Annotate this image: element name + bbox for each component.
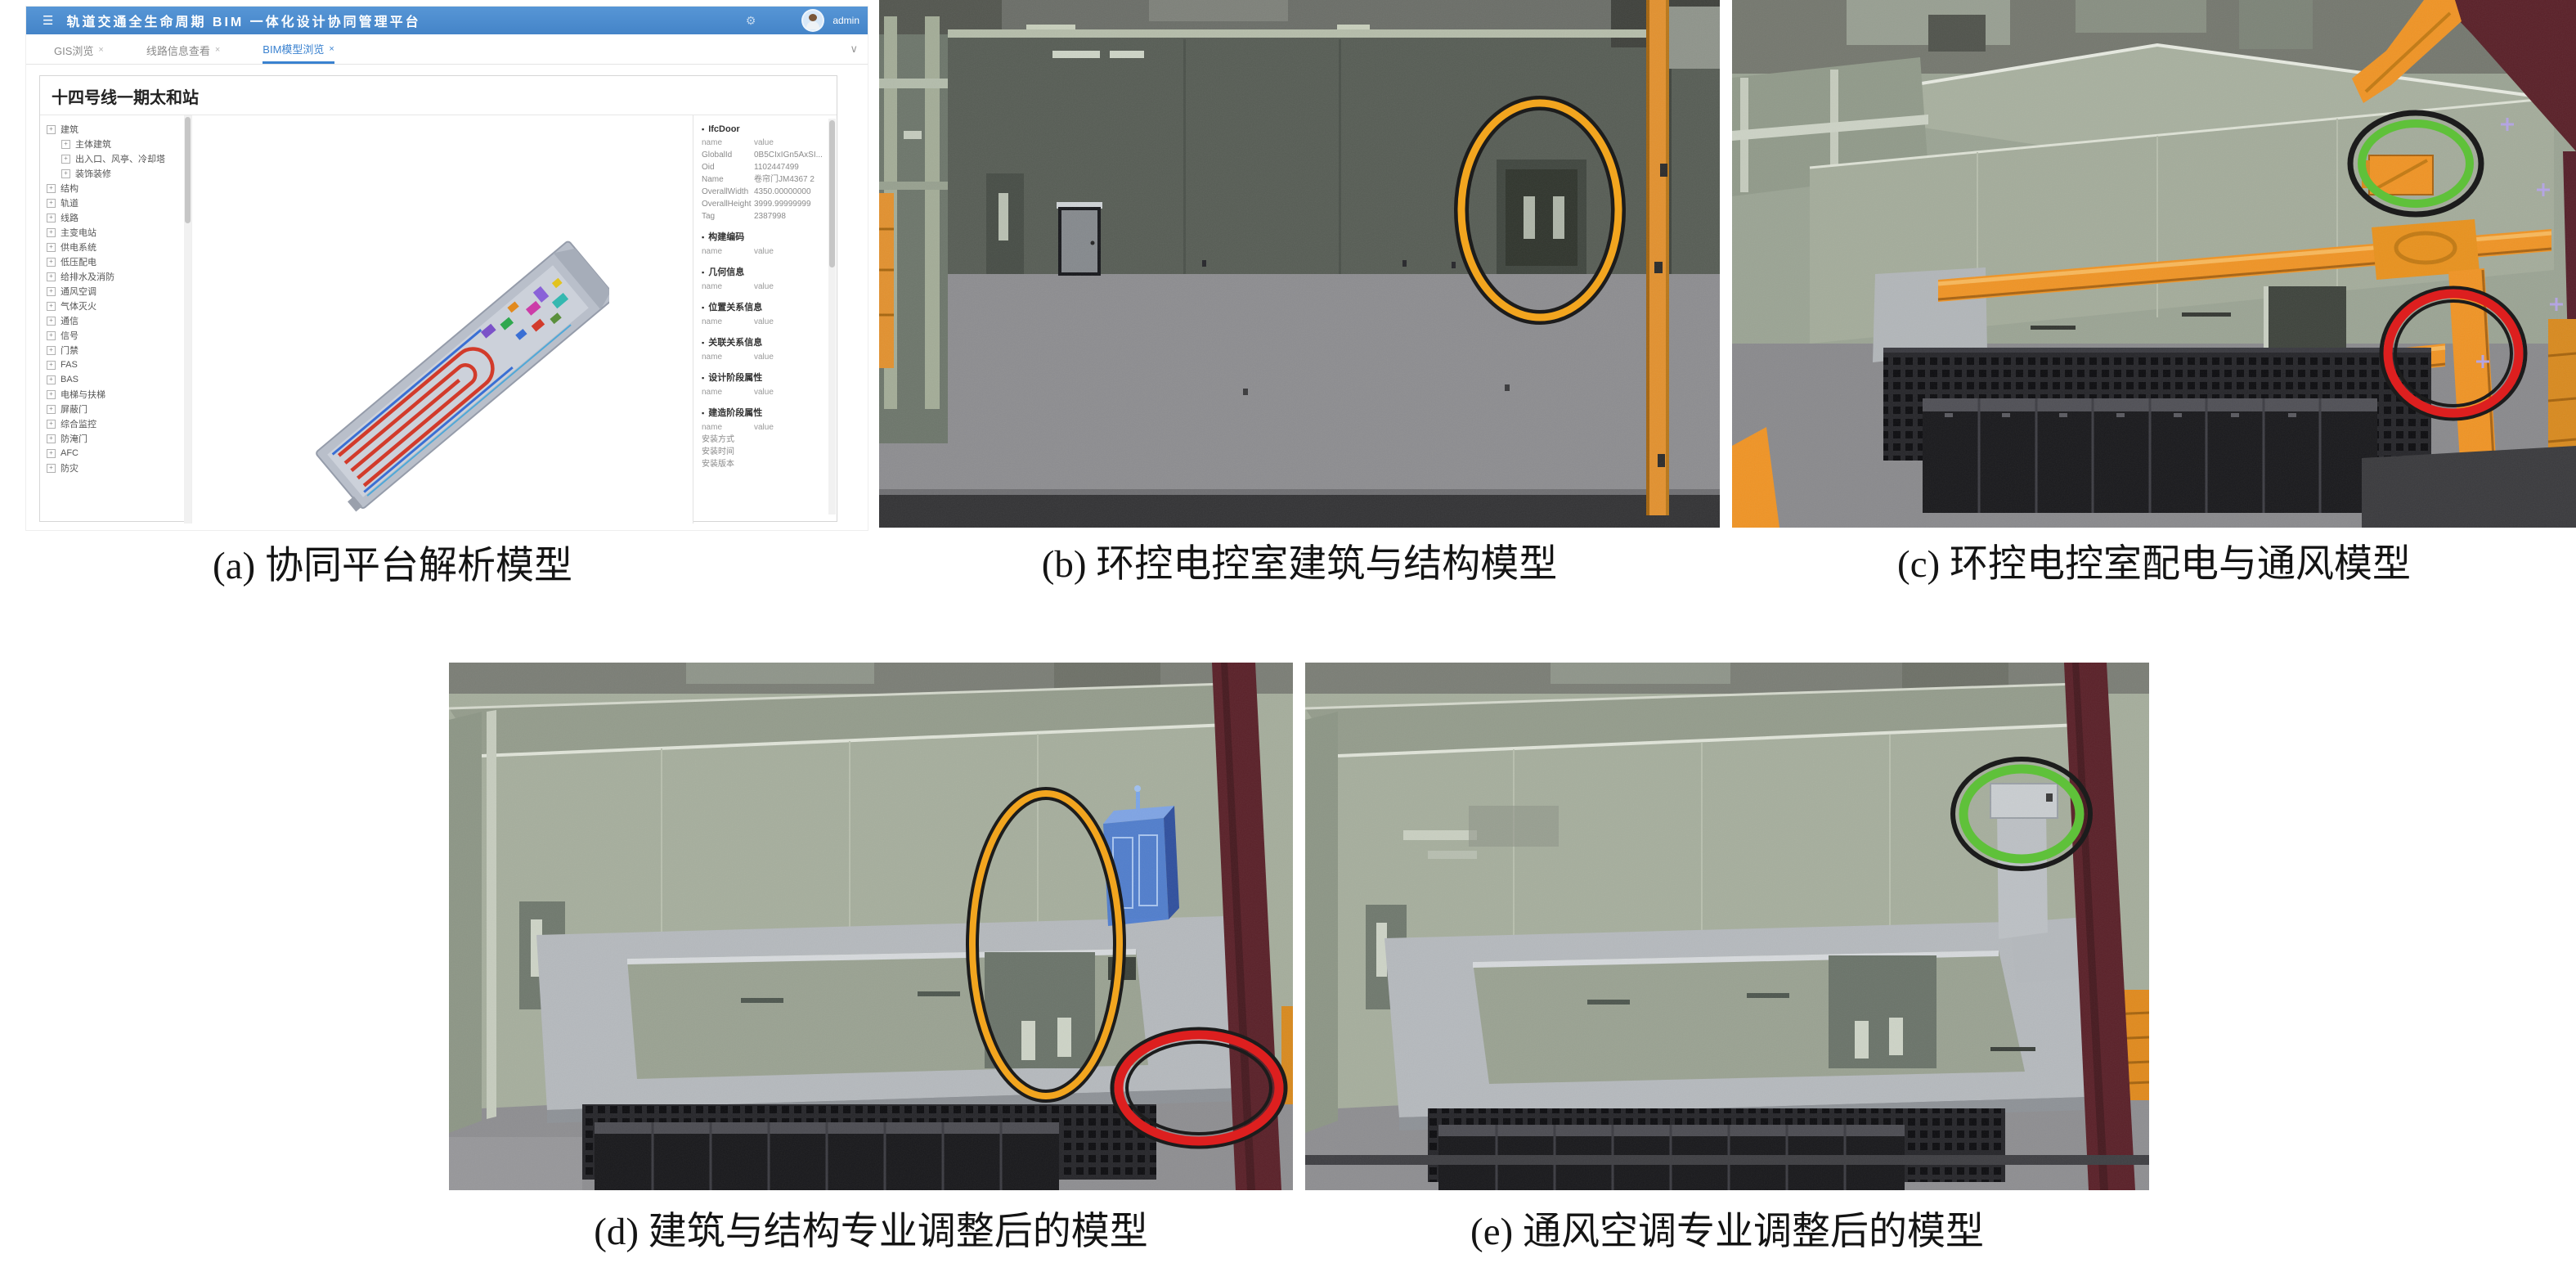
concrete-texture [1305, 663, 2149, 1190]
subfigure-b-structure-model [879, 0, 1720, 528]
tree-expander-icon[interactable]: + [47, 464, 56, 473]
property-section-title[interactable]: ▪几何信息 [702, 265, 827, 278]
tree-item[interactable]: +防淹门 [47, 431, 184, 446]
property-value: value [754, 386, 827, 398]
tree-item[interactable]: +供电系统 [47, 240, 184, 254]
property-row: Oid1102447499 [702, 161, 827, 173]
tree-item-label: 轨道 [61, 196, 79, 209]
property-panel: ▪IfcDoornamevalueGlobalId0B5CIxIGn5AxSI.… [693, 115, 837, 524]
tree-item-label: 供电系统 [61, 240, 96, 254]
hamburger-menu-icon[interactable]: ☰ [43, 13, 53, 28]
tree-item[interactable]: +BAS [47, 372, 184, 387]
property-value: 2387998 [754, 210, 827, 222]
tree-item[interactable]: +轨道 [47, 196, 184, 210]
tree-item[interactable]: +低压配电 [47, 254, 184, 269]
property-header-row: namevalue [702, 245, 827, 258]
tab-close-icon[interactable]: × [98, 45, 103, 55]
tree-item-label: 信号 [61, 329, 79, 342]
property-value: value [754, 351, 827, 363]
property-row: Name卷帘门JM4367 2 [702, 173, 827, 186]
property-row: OverallHeight3999.99999999 [702, 198, 827, 210]
tree-item[interactable]: +装饰装修 [61, 166, 184, 181]
property-key: name [702, 386, 754, 398]
tree-expander-icon[interactable]: + [47, 317, 56, 326]
username-label: admin [832, 15, 859, 26]
tree-item-label: 建筑 [61, 123, 79, 136]
tab-label: GIS浏览 [54, 43, 93, 58]
property-value: 卷帘门JM4367 2 [754, 173, 827, 186]
property-value: value [754, 245, 827, 258]
property-key: Oid [702, 161, 754, 173]
section-marker-icon: ▪ [702, 409, 704, 417]
property-header-row: namevalue [702, 386, 827, 398]
property-value: 3999.99999999 [754, 198, 827, 210]
subfigure-e-adjusted-hvac [1305, 663, 2149, 1190]
tree-item-label: 装饰装修 [75, 167, 111, 180]
tree-item[interactable]: +电梯与扶梯 [47, 387, 184, 402]
property-header-row: namevalue [702, 316, 827, 328]
property-value: value [754, 421, 827, 434]
tree-expander-icon[interactable]: + [47, 287, 56, 296]
property-key: GlobalId [702, 149, 754, 161]
subfigure-d-adjusted-structure [449, 663, 1293, 1190]
section-marker-icon: ▪ [702, 268, 704, 276]
tree-item[interactable]: +AFC [47, 446, 184, 461]
tree-item[interactable]: +FAS [47, 357, 184, 372]
tree-expander-icon[interactable]: + [47, 125, 56, 134]
tab-line-info[interactable]: 线路信息查看 × [146, 34, 220, 64]
tree-expander-icon[interactable]: + [47, 420, 56, 429]
model-viewport[interactable] [191, 115, 693, 524]
concrete-texture [1732, 0, 2576, 528]
tree-item-label: 主变电站 [61, 226, 96, 239]
property-key: name [702, 281, 754, 293]
tree-expander-icon[interactable]: + [47, 199, 56, 208]
property-section: ▪几何信息namevalue [702, 265, 827, 293]
tree-item-label: 结构 [61, 182, 79, 195]
tree-item-label: 综合监控 [61, 417, 96, 430]
property-row: GlobalId0B5CIxIGn5AxSI... [702, 149, 827, 161]
caption-c: (c) 环控电控室配电与通风模型 [1897, 532, 2411, 588]
section-marker-icon: ▪ [702, 303, 704, 312]
property-key: name [702, 351, 754, 363]
tree-expander-icon[interactable]: + [47, 346, 56, 355]
property-row: 安装方式 [702, 434, 827, 446]
property-section: ▪建造阶段属性namevalue安装方式安装时间安装版本 [702, 406, 827, 470]
property-row: OverallWidth4350.00000000 [702, 186, 827, 198]
property-key: name [702, 245, 754, 258]
property-value: value [754, 316, 827, 328]
tree-expander-icon[interactable]: + [47, 434, 56, 443]
caption-e: (e) 通风空调专业调整后的模型 [1470, 1199, 1984, 1256]
property-key: Name [702, 173, 754, 186]
property-key: Tag [702, 210, 754, 222]
tree-item[interactable]: +通风空调 [47, 284, 184, 299]
property-value: 4350.00000000 [754, 186, 827, 198]
tree-expander-icon[interactable]: + [47, 228, 56, 237]
property-header-row: namevalue [702, 137, 827, 149]
tree-expander-icon[interactable]: + [47, 331, 56, 340]
tab-close-icon[interactable]: × [215, 45, 220, 55]
tree-item-label: BAS [61, 375, 79, 384]
section-marker-icon: ▪ [702, 374, 704, 382]
station-3d-model [315, 213, 609, 524]
property-key: 安装时间 [702, 446, 754, 458]
property-header-row: namevalue [702, 421, 827, 434]
tree-item[interactable]: +气体灭火 [47, 299, 184, 313]
tree-item[interactable]: +屏蔽门 [47, 402, 184, 416]
property-key: 安装版本 [702, 458, 754, 470]
model-browser-panel: 十四号线一期太和站 +建筑+主体建筑+出入口、风亭、冷却塔+装饰装修+结构+轨道… [39, 75, 837, 522]
property-row: Tag2387998 [702, 210, 827, 222]
tree-expander-icon[interactable]: + [47, 243, 56, 252]
property-section-title[interactable]: ▪IfcDoor [702, 124, 827, 134]
tree-expander-icon[interactable]: + [61, 140, 70, 149]
property-section: ▪位置关系信息namevalue [702, 300, 827, 328]
property-key: OverallWidth [702, 186, 754, 198]
settings-gear-icon[interactable]: ⚙ [746, 14, 756, 28]
user-avatar[interactable] [801, 9, 824, 32]
concrete-texture [879, 0, 1720, 528]
tree-expander-icon[interactable]: + [47, 272, 56, 281]
props-scrollbar[interactable] [828, 119, 836, 515]
tree-item-label: 主体建筑 [75, 137, 111, 151]
section-marker-icon: ▪ [702, 339, 704, 347]
property-row: 安装时间 [702, 446, 827, 458]
property-value: value [754, 281, 827, 293]
property-header-row: namevalue [702, 351, 827, 363]
station-title: 十四号线一期太和站 [40, 76, 837, 115]
scrollbar-thumb[interactable] [829, 120, 835, 267]
tree-item-label: 电梯与扶梯 [61, 388, 105, 401]
scrollbar-thumb[interactable] [185, 117, 191, 223]
tree-item[interactable]: +给排水及消防 [47, 269, 184, 284]
tree-item-label: 屏蔽门 [61, 402, 88, 416]
tree-item-label: 防灾 [61, 461, 79, 474]
property-header-row: namevalue [702, 281, 827, 293]
tree-item-label: 通信 [61, 314, 79, 327]
tree-expander-icon[interactable]: + [47, 184, 56, 193]
tree-item-label: FAS [61, 360, 78, 370]
property-key: OverallHeight [702, 198, 754, 210]
tree-item[interactable]: +通信 [47, 313, 184, 328]
tree-item[interactable]: +线路 [47, 210, 184, 225]
tree-item-label: AFC [61, 448, 79, 458]
tree-item[interactable]: +门禁 [47, 343, 184, 357]
tree-item-label: 出入口、风亭、冷却塔 [75, 152, 165, 165]
section-marker-icon: ▪ [702, 233, 704, 241]
section-marker-icon: ▪ [702, 125, 704, 133]
property-section-title[interactable]: ▪构建编码 [702, 230, 827, 243]
caption-a: (a) 协同平台解析模型 [213, 533, 572, 590]
tree-expander-icon[interactable]: + [61, 155, 70, 164]
tree-item[interactable]: +主体建筑 [61, 137, 184, 151]
property-value [754, 446, 827, 458]
tree-item-label: 通风空调 [61, 285, 96, 298]
tree-item[interactable]: +主变电站 [47, 225, 184, 240]
tree-item-label: 门禁 [61, 344, 79, 357]
tree-item-label: 线路 [61, 211, 79, 224]
tree-item-label: 防淹门 [61, 432, 88, 445]
model-tree: +建筑+主体建筑+出入口、风亭、冷却塔+装饰装修+结构+轨道+线路+主变电站+供… [40, 115, 184, 524]
tree-expander-icon[interactable]: + [61, 169, 70, 178]
property-value: value [754, 137, 827, 149]
tree-expander-icon[interactable]: + [47, 302, 56, 311]
property-section: ▪IfcDoornamevalueGlobalId0B5CIxIGn5AxSI.… [702, 124, 827, 222]
concrete-texture [449, 663, 1293, 1190]
tab-label: BIM模型浏览 [263, 41, 324, 56]
property-section: ▪构建编码namevalue [702, 230, 827, 258]
tree-item[interactable]: +信号 [47, 328, 184, 343]
tree-item-label: 气体灭火 [61, 299, 96, 312]
tree-expander-icon[interactable]: + [47, 361, 56, 370]
chevron-down-icon[interactable]: ∨ [850, 43, 858, 56]
property-section-title[interactable]: ▪建造阶段属性 [702, 406, 827, 419]
property-value [754, 434, 827, 446]
tree-expander-icon[interactable]: + [47, 375, 56, 384]
tree-expander-icon[interactable]: + [47, 405, 56, 414]
property-value: 0B5CIxIGn5AxSI... [754, 149, 827, 161]
property-key: 安装方式 [702, 434, 754, 446]
property-section-title[interactable]: ▪位置关系信息 [702, 300, 827, 313]
property-value [754, 458, 827, 470]
tree-expander-icon[interactable]: + [47, 390, 56, 399]
subfigure-a-platform-screenshot: ☰ 轨道交通全生命周期 BIM 一体化设计协同管理平台 ⚙ admin GIS浏… [26, 7, 868, 530]
subfigure-c-mep-model [1732, 0, 2576, 528]
property-key: name [702, 421, 754, 434]
property-section-title[interactable]: ▪设计阶段属性 [702, 371, 827, 384]
tree-item-label: 给排水及消防 [61, 270, 114, 283]
tab-bim-model[interactable]: BIM模型浏览 × [263, 34, 334, 64]
tab-gis[interactable]: GIS浏览 × [54, 34, 104, 64]
tree-expander-icon[interactable]: + [47, 449, 56, 458]
caption-b: (b) 环控电控室建筑与结构模型 [1042, 532, 1558, 588]
property-row: 安装版本 [702, 458, 827, 470]
caption-d: (d) 建筑与结构专业调整后的模型 [594, 1199, 1148, 1256]
property-section: ▪关联关系信息namevalue [702, 335, 827, 363]
tab-bar: GIS浏览 × 线路信息查看 × BIM模型浏览 × ∨ [26, 34, 868, 65]
tree-expander-icon[interactable]: + [47, 258, 56, 267]
property-section: ▪设计阶段属性namevalue [702, 371, 827, 398]
tab-close-icon[interactable]: × [329, 44, 334, 54]
tree-scrollbar[interactable] [184, 115, 191, 524]
titlebar-right: ⚙ admin [746, 9, 859, 32]
titlebar: ☰ 轨道交通全生命周期 BIM 一体化设计协同管理平台 ⚙ admin [26, 7, 868, 34]
property-key: name [702, 316, 754, 328]
property-section-title[interactable]: ▪关联关系信息 [702, 335, 827, 348]
property-key: name [702, 137, 754, 149]
tab-label: 线路信息查看 [146, 43, 210, 58]
app-title: 轨道交通全生命周期 BIM 一体化设计协同管理平台 [66, 11, 420, 30]
tree-item[interactable]: +防灾 [47, 461, 184, 475]
tree-item-label: 低压配电 [61, 255, 96, 268]
property-value: 1102447499 [754, 161, 827, 173]
tree-item[interactable]: +综合监控 [47, 416, 184, 431]
tree-item[interactable]: +建筑 [47, 122, 184, 137]
tree-item[interactable]: +出入口、风亭、冷却塔 [61, 151, 184, 166]
tree-expander-icon[interactable]: + [47, 213, 56, 222]
tree-item[interactable]: +结构 [47, 181, 184, 196]
